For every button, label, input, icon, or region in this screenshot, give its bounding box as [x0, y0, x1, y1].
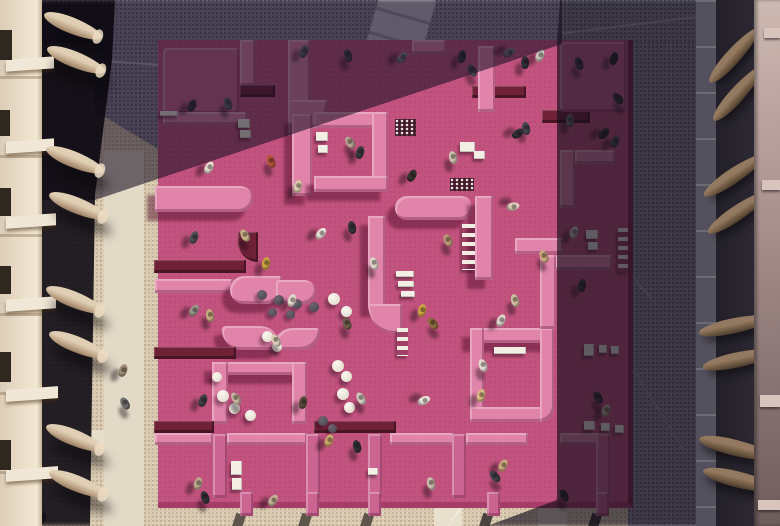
- stool: [274, 295, 284, 305]
- maze-wall: [227, 433, 307, 445]
- stool: [268, 308, 277, 317]
- table-round: [332, 360, 344, 372]
- maze-wall-dark: [154, 260, 246, 273]
- shelf-items: [397, 328, 408, 356]
- perforated-panel: [395, 119, 416, 136]
- table-round: [328, 293, 340, 305]
- facade-ledge: [760, 395, 780, 407]
- table-bench: [460, 142, 475, 152]
- table-bench: [232, 478, 242, 490]
- facade-window: [0, 110, 10, 136]
- table-bench: [231, 461, 242, 475]
- perforated-panel: [450, 178, 474, 191]
- maze-wall: [540, 255, 556, 329]
- maze-wall: [487, 492, 500, 516]
- table-round: [245, 410, 256, 421]
- table-bench: [474, 151, 485, 159]
- maze-wall: [155, 186, 253, 212]
- table-round: [337, 388, 349, 400]
- table-bench: [396, 271, 414, 277]
- facade-ledge: [762, 180, 780, 190]
- maze-wall: [452, 434, 466, 498]
- maze-wall: [306, 434, 320, 498]
- table-bench: [401, 291, 415, 297]
- table-round: [341, 371, 352, 382]
- maze-wall: [540, 328, 554, 422]
- stool: [318, 416, 328, 426]
- table-bench: [316, 132, 328, 141]
- table-bench: [368, 468, 378, 475]
- shelf-items: [462, 224, 475, 270]
- facade-window: [0, 440, 11, 470]
- maze-wall: [292, 362, 307, 424]
- facade-window: [0, 266, 11, 294]
- facade-window: [0, 30, 12, 60]
- maze-wall: [213, 434, 227, 498]
- facade-window: [0, 188, 11, 216]
- stool: [286, 310, 295, 319]
- stool: [257, 290, 267, 300]
- maze-wall: [395, 196, 473, 220]
- person: [521, 56, 529, 69]
- table-bench: [494, 347, 526, 354]
- maze-wall: [314, 176, 388, 192]
- facade-ledge: [758, 500, 780, 510]
- maze-wall: [475, 196, 493, 280]
- stool: [328, 424, 337, 433]
- facade-window: [0, 352, 11, 382]
- maze-wall: [368, 492, 381, 516]
- right-building-facade: [754, 0, 780, 526]
- maze-wall: [390, 433, 454, 445]
- maze-wall-dark: [154, 347, 236, 359]
- table-round: [344, 402, 355, 413]
- maze-wall-dark: [154, 421, 214, 433]
- maze-wall: [466, 433, 528, 445]
- stool: [309, 302, 319, 312]
- maze-wall: [240, 492, 253, 516]
- table-round: [212, 372, 222, 382]
- table-bench: [318, 145, 328, 153]
- table-bench: [398, 281, 414, 287]
- maze-wall: [155, 279, 233, 293]
- table-round: [341, 306, 352, 317]
- maze-wall: [155, 433, 213, 445]
- facade-ledge: [764, 28, 780, 38]
- table-round: [217, 390, 229, 402]
- pavement-path: [104, 150, 144, 526]
- aerial-render: [0, 0, 780, 526]
- maze-wall: [368, 434, 382, 498]
- maze-wall: [306, 492, 319, 516]
